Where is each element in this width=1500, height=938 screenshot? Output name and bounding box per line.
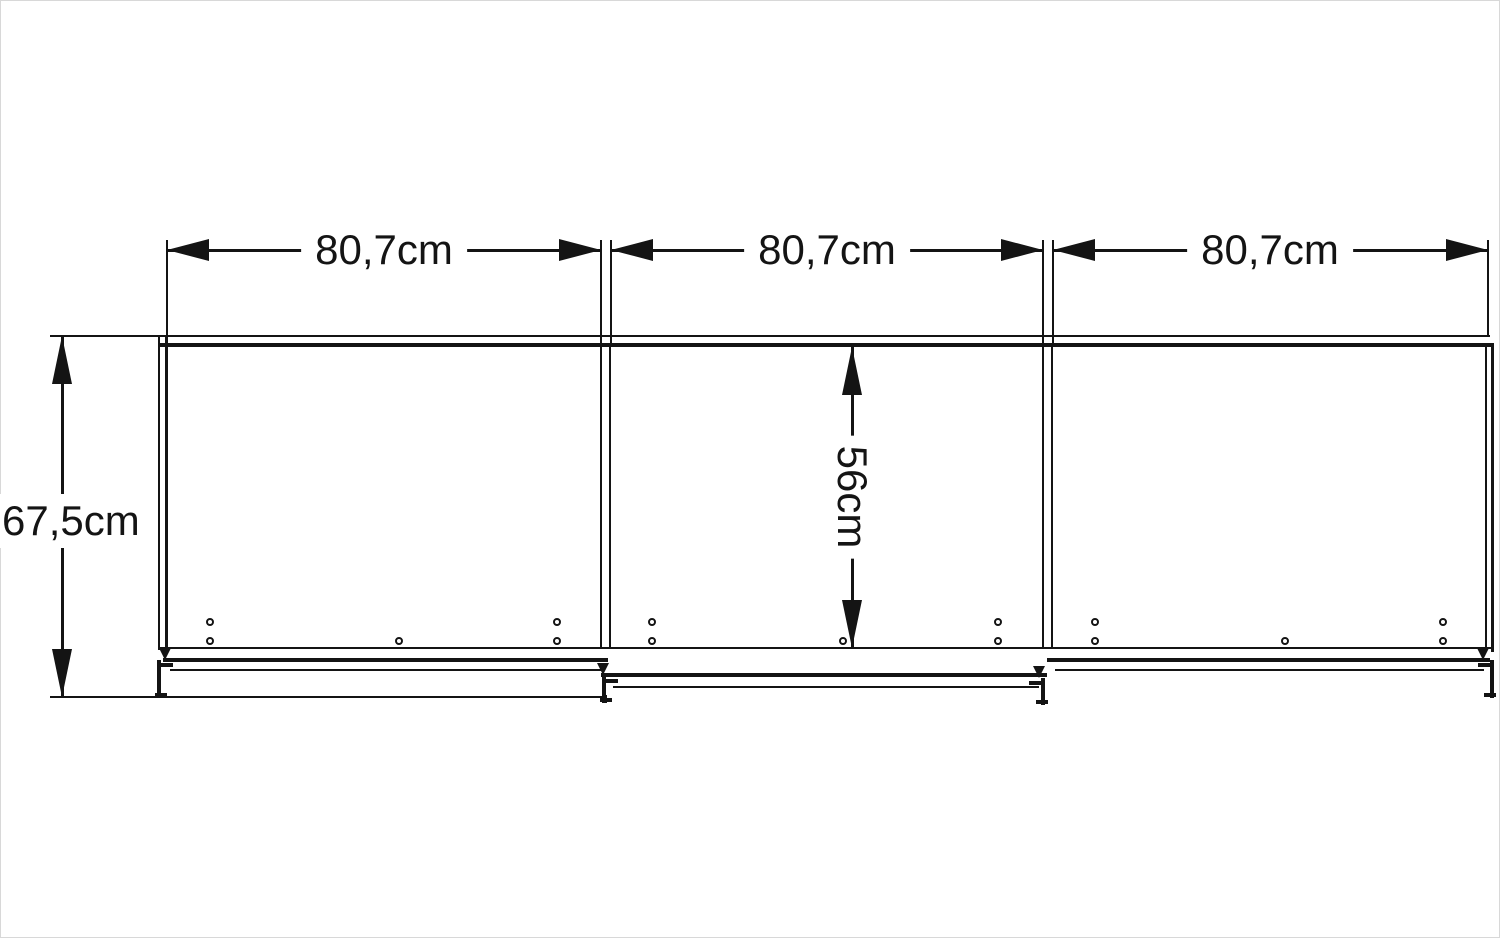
width-dimension-label-1: 80,7cm bbox=[301, 223, 467, 277]
arrowhead-left-icon bbox=[167, 239, 209, 261]
arrowhead-left-icon bbox=[1053, 239, 1095, 261]
cabinet-left-side-inner bbox=[165, 335, 168, 650]
arrowhead-right-icon bbox=[559, 239, 601, 261]
drill-hole-dot bbox=[1439, 618, 1447, 626]
arrowhead-down-icon bbox=[52, 649, 72, 697]
drill-hole-dot bbox=[553, 637, 561, 645]
rail-end-bracket bbox=[1478, 663, 1490, 667]
rail-end-bracket bbox=[155, 693, 167, 697]
door-guide-hook-icon bbox=[1033, 666, 1045, 678]
drill-hole-dot bbox=[839, 637, 847, 645]
drill-hole-dot bbox=[206, 637, 214, 645]
arrowhead-up-icon bbox=[52, 336, 72, 384]
bottom-rail-right-inner bbox=[1055, 669, 1484, 671]
door-divider-right-a bbox=[1042, 343, 1044, 648]
bottom-rail-right bbox=[1047, 658, 1490, 662]
rail-end-bracket bbox=[1484, 693, 1496, 697]
drill-hole-dot bbox=[648, 637, 656, 645]
plinth-line-left bbox=[147, 696, 607, 699]
door-guide-hook-icon bbox=[597, 663, 609, 675]
rail-end-bracket bbox=[1036, 700, 1048, 704]
arrowhead-right-icon bbox=[1446, 239, 1488, 261]
bottom-rail-left-inner bbox=[170, 669, 602, 671]
width-dimension-label-3: 80,7cm bbox=[1187, 223, 1353, 277]
door-guide-hook-icon bbox=[159, 648, 171, 660]
drill-hole-dot bbox=[1281, 637, 1289, 645]
door-divider-right-b bbox=[1051, 343, 1053, 648]
rail-end-bracket bbox=[606, 679, 618, 683]
drill-hole-dot bbox=[1439, 637, 1447, 645]
height-dimension-label: 67,5cm bbox=[0, 494, 152, 548]
cabinet-right-side-inner bbox=[1491, 343, 1494, 652]
arrowhead-up-icon bbox=[842, 347, 862, 395]
door-guide-hook-icon bbox=[1477, 648, 1489, 660]
bottom-rail-left bbox=[163, 658, 608, 662]
arrowhead-right-icon bbox=[1001, 239, 1043, 261]
drill-hole-dot bbox=[994, 637, 1002, 645]
cabinet-left-side-outer bbox=[158, 335, 160, 650]
furniture-dimension-diagram: 80,7cm 80,7cm 80,7cm 67,5cm 56cm bbox=[0, 0, 1500, 938]
drill-hole-dot bbox=[994, 618, 1002, 626]
width-dimension-label-2: 80,7cm bbox=[744, 223, 910, 277]
cabinet-top-edge-inner bbox=[160, 343, 1493, 347]
door-divider-left-a bbox=[600, 343, 602, 648]
cabinet-top-edge-outer bbox=[160, 335, 1490, 337]
arrowhead-left-icon bbox=[611, 239, 653, 261]
cabinet-right-side-outer bbox=[1485, 343, 1487, 652]
door-divider-left-b bbox=[609, 343, 611, 648]
drill-hole-dot bbox=[206, 618, 214, 626]
bottom-rail-middle-inner bbox=[613, 686, 1039, 688]
rail-end-bracket bbox=[161, 663, 173, 667]
cabinet-bottom-edge bbox=[158, 647, 1493, 649]
drill-hole-dot bbox=[648, 618, 656, 626]
rail-end-bracket bbox=[1029, 681, 1041, 685]
drill-hole-dot bbox=[395, 637, 403, 645]
drill-hole-dot bbox=[553, 618, 561, 626]
bottom-rail-middle bbox=[601, 673, 1047, 677]
drill-hole-dot bbox=[1091, 618, 1099, 626]
drill-hole-dot bbox=[1091, 637, 1099, 645]
inner-height-dimension-label: 56cm bbox=[825, 436, 879, 559]
rail-end-bracket bbox=[600, 698, 612, 702]
